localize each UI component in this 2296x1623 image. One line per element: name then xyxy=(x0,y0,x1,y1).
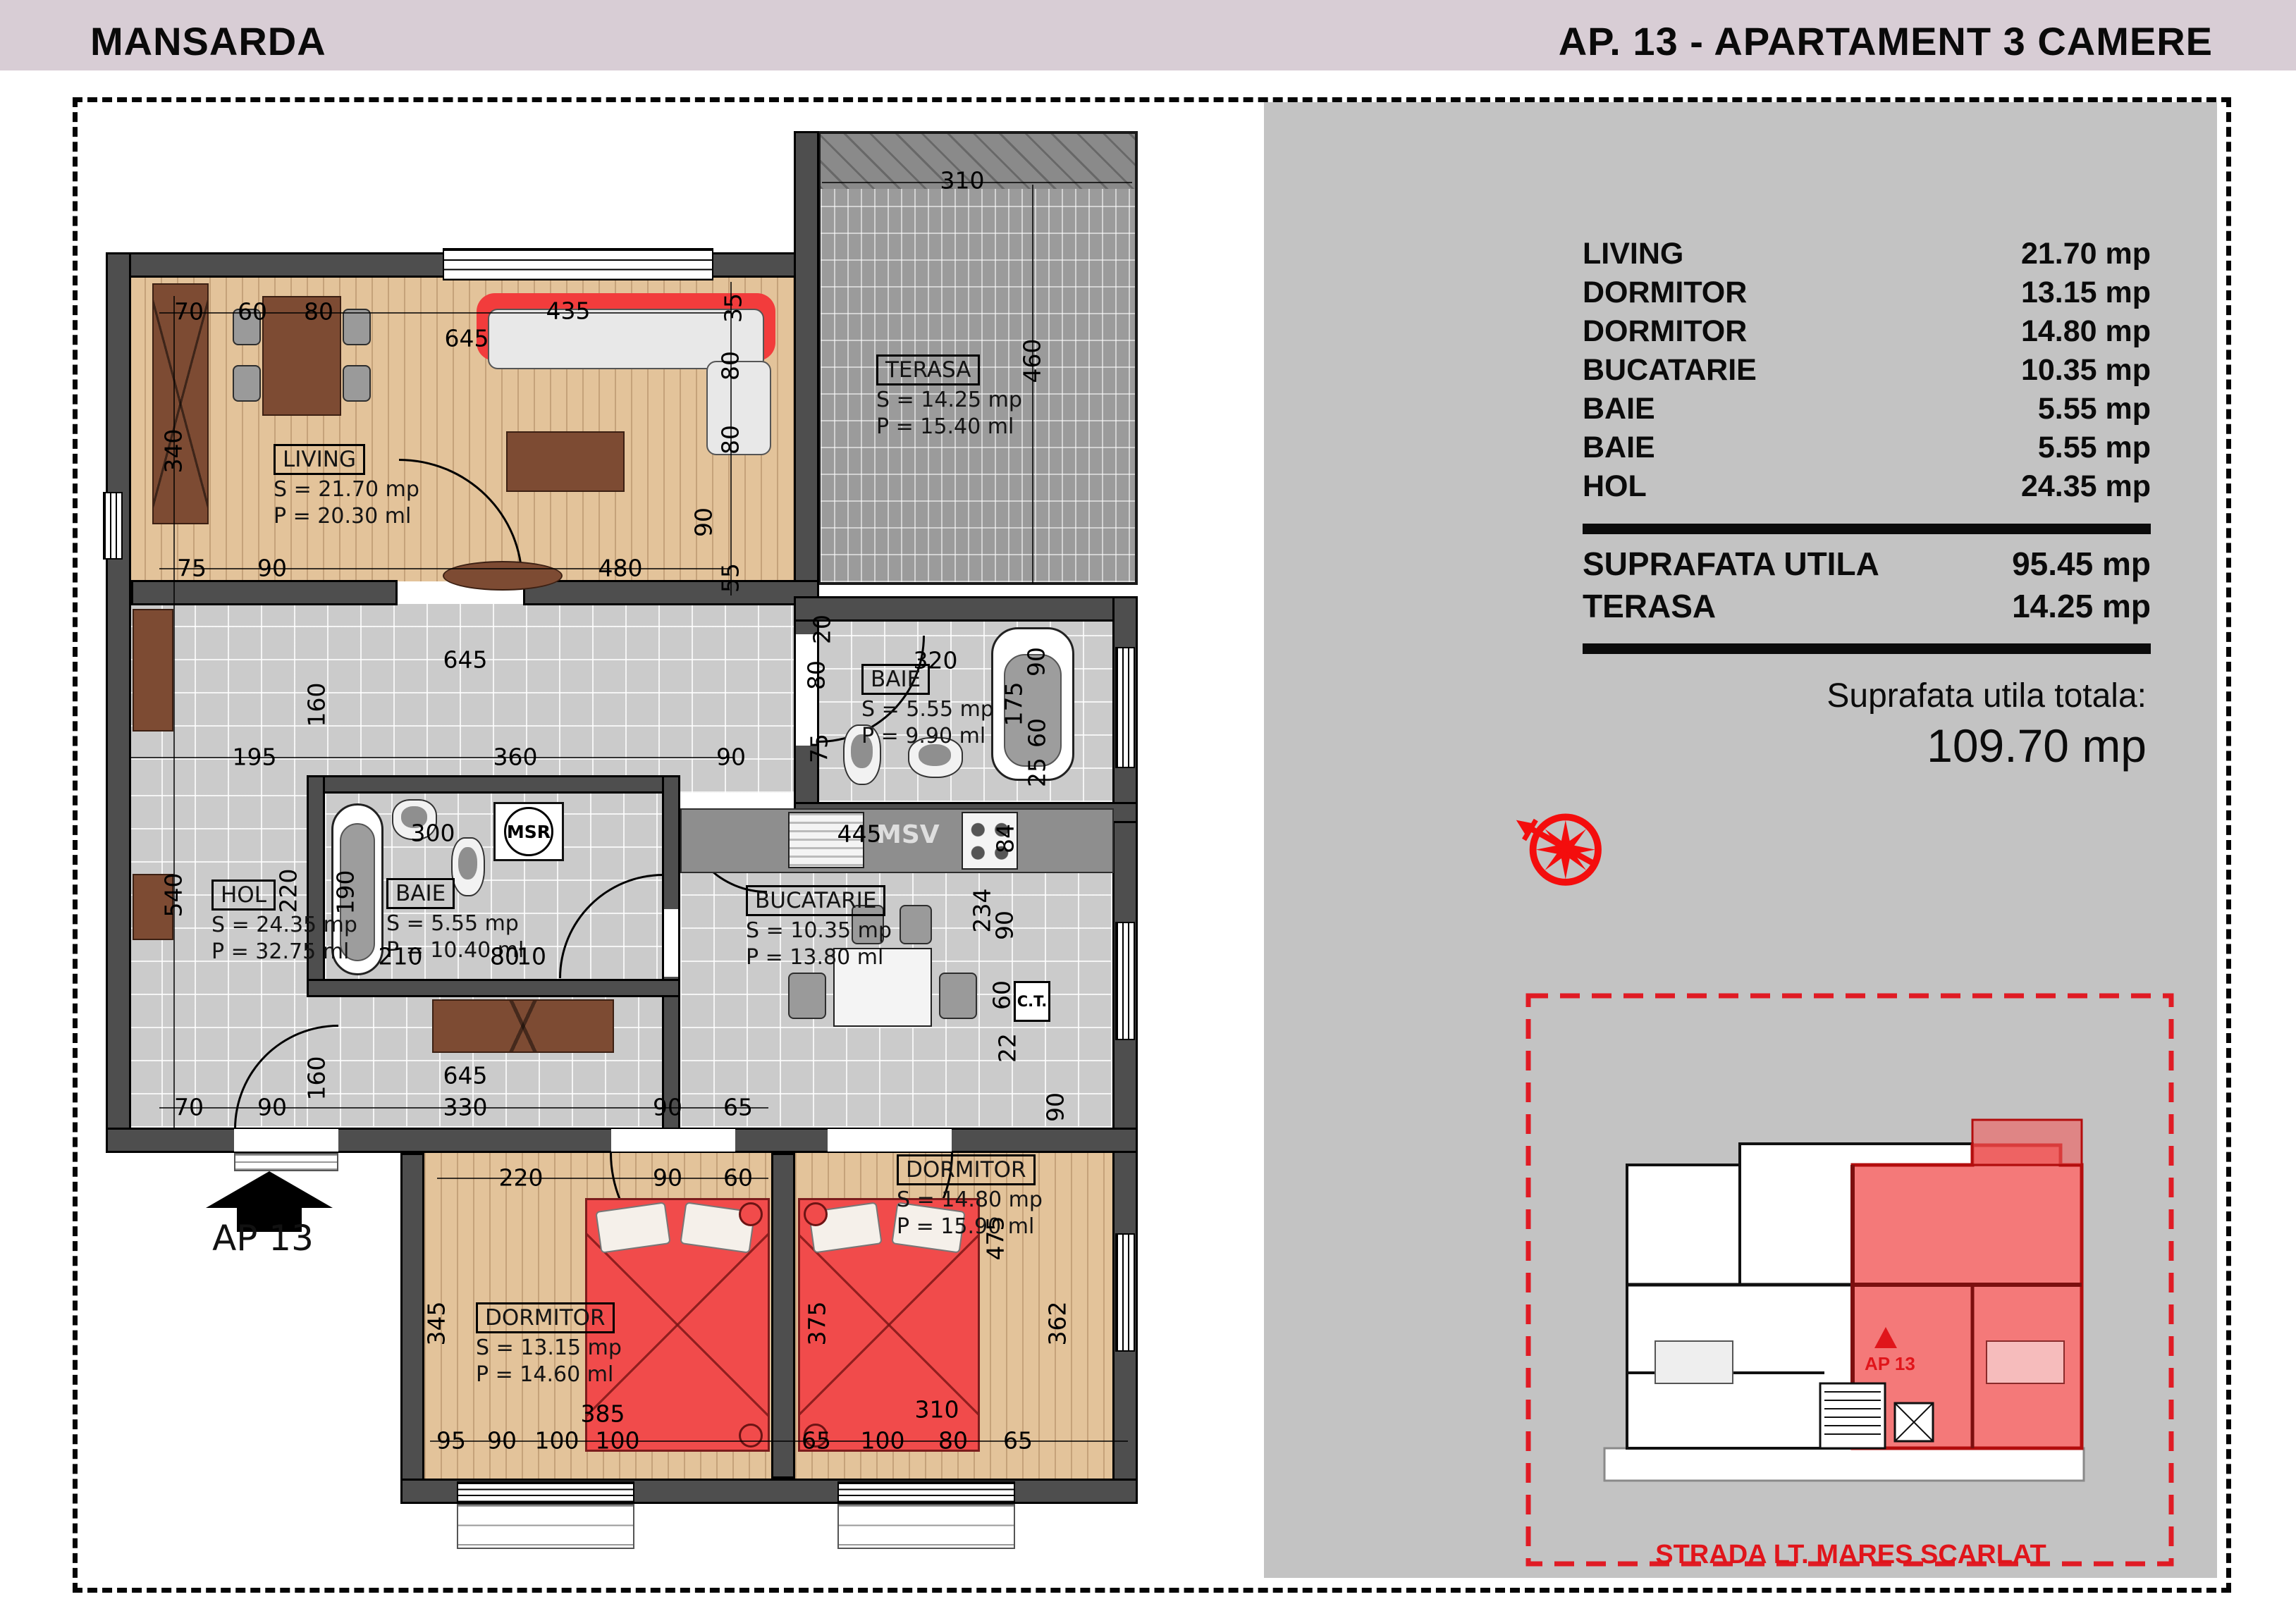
site-plan xyxy=(1521,989,2180,1586)
subtotal-name: TERASA xyxy=(1583,587,1716,625)
dimension-text: 310 xyxy=(915,1396,959,1424)
dimension-text: 310 xyxy=(940,167,985,195)
dimension-text: 90 xyxy=(1042,1092,1069,1122)
dimension-text: 90 xyxy=(991,911,1019,940)
plan-room-name: DORMITOR xyxy=(476,1302,615,1333)
plan-room-surface: S = 21.70 mp xyxy=(274,477,419,502)
plan-room-perimeter: P = 15.40 ml xyxy=(876,414,1022,439)
room-area: 24.35 mp xyxy=(2021,469,2151,504)
room-area: 14.80 mp xyxy=(2021,314,2151,349)
dimension-text: 475 xyxy=(982,1216,1009,1261)
site-unit-label: AP 13 xyxy=(1865,1353,1915,1375)
door-opening xyxy=(611,1129,735,1152)
window xyxy=(443,248,713,280)
dimension-text: 340 xyxy=(160,429,188,474)
dimension-text: 60 xyxy=(1024,718,1051,748)
divider xyxy=(1583,643,2151,654)
dimension-text: 160 xyxy=(303,683,331,727)
wall xyxy=(307,979,680,997)
dimension-text: 445 xyxy=(837,820,882,848)
plan-room-name: DORMITOR xyxy=(897,1154,1036,1185)
chair xyxy=(343,365,371,402)
floor-plan: MSR MSV C.T. AP 13 LIVINGS = 21.70 mpP =… xyxy=(0,0,1269,1623)
room-name: BAIE xyxy=(1583,392,1655,426)
plan-room-label: BAIES = 5.55 mpP = 9.90 ml xyxy=(861,664,994,749)
msr-annotation: MSR xyxy=(493,802,564,861)
dimension-text: 300 xyxy=(411,820,455,847)
plan-room-label: TERASAS = 14.25 mpP = 15.40 ml xyxy=(876,354,1022,440)
dimension-text: 90 xyxy=(690,507,718,537)
dimension-text: 60 xyxy=(988,980,1016,1010)
dimension-text: 90 xyxy=(653,1094,682,1121)
plan-room-name: BAIE xyxy=(386,878,455,909)
dimension-text: 60 xyxy=(238,298,267,326)
dimension-text: 540 xyxy=(160,873,188,918)
chair xyxy=(233,365,261,402)
room-name: LIVING xyxy=(1583,237,1683,271)
plan-room-perimeter: P = 15.90 ml xyxy=(897,1214,1043,1239)
dimension-line xyxy=(437,1178,768,1179)
plan-room-perimeter: P = 20.30 ml xyxy=(274,504,419,529)
plan-room-name: TERASA xyxy=(876,354,980,385)
room-area: 13.15 mp xyxy=(2021,276,2151,310)
plan-room-perimeter: P = 9.90 ml xyxy=(861,724,994,748)
dimension-text: 90 xyxy=(716,743,746,771)
dimension-text: 210 xyxy=(379,943,423,970)
room-area: 5.55 mp xyxy=(2038,431,2151,465)
entrance-arrow-icon xyxy=(206,1171,333,1208)
room-name: BAIE xyxy=(1583,431,1655,465)
dresser xyxy=(432,999,614,1053)
dimension-text: 55 xyxy=(717,563,744,593)
dimension-text: 375 xyxy=(804,1302,831,1346)
door-opening xyxy=(828,1129,952,1152)
wall xyxy=(771,1153,795,1479)
street-label: STRADA LT. MARES SCARLAT xyxy=(1521,1540,2180,1570)
dimension-line xyxy=(131,757,733,758)
window xyxy=(457,1481,634,1502)
dimension-text: 65 xyxy=(723,1094,753,1121)
window xyxy=(1115,647,1135,768)
dimension-text: 220 xyxy=(499,1164,544,1192)
wall xyxy=(131,580,398,605)
door-opening xyxy=(796,634,817,746)
plan-room-perimeter: P = 32.75 ml xyxy=(211,939,357,964)
closet xyxy=(133,609,173,732)
plan-room-label: LIVINGS = 21.70 mpP = 20.30 ml xyxy=(274,444,419,529)
plan-room-surface: S = 5.55 mp xyxy=(386,911,524,936)
plan-room-surface: S = 10.35 mp xyxy=(746,918,892,943)
chair xyxy=(900,905,932,944)
dimension-text: 84 xyxy=(992,824,1019,853)
room-name: DORMITOR xyxy=(1583,276,1747,310)
bed-knob xyxy=(739,1202,763,1226)
room-name: HOL xyxy=(1583,469,1647,504)
room-area: 21.70 mp xyxy=(2021,237,2151,271)
dimension-text: 25 xyxy=(1024,758,1051,787)
wall xyxy=(307,775,680,794)
plan-room-label: DORMITORS = 13.15 mpP = 14.60 ml xyxy=(476,1302,622,1388)
dimension-text: 65 xyxy=(802,1427,831,1455)
room-area-row: HOL24.35 mp xyxy=(1583,467,2151,506)
wall xyxy=(523,580,819,605)
summary-panel: LIVING21.70 mpDORMITOR13.15 mpDORMITOR14… xyxy=(1264,102,2217,1578)
plan-room-surface: S = 14.80 mp xyxy=(897,1187,1043,1212)
room-area: 10.35 mp xyxy=(2021,353,2151,388)
plan-room-name: BUCATARIE xyxy=(746,885,885,916)
entrance-threshold xyxy=(234,1153,338,1171)
dimension-text: 80 xyxy=(803,660,830,690)
dimension-line xyxy=(1032,185,1033,584)
window-sill xyxy=(457,1504,634,1549)
msr-label: MSR xyxy=(504,807,553,856)
dimension-text: 385 xyxy=(581,1400,625,1428)
dimension-text: 645 xyxy=(445,325,489,352)
dimension-text: 645 xyxy=(443,1062,488,1090)
plan-room-surface: S = 24.35 mp xyxy=(211,913,357,937)
subtotal-row: SUPRAFATA UTILA95.45 mp xyxy=(1583,543,2151,585)
room-area-row: BAIE5.55 mp xyxy=(1583,390,2151,428)
divider xyxy=(1583,524,2151,534)
dimension-text: 70 xyxy=(174,1094,204,1121)
wall xyxy=(794,596,1138,622)
subtotal-area: 95.45 mp xyxy=(2012,545,2151,583)
dimension-text: 360 xyxy=(493,743,538,771)
window xyxy=(1115,1233,1135,1352)
dimension-text: 220 xyxy=(275,869,302,913)
dimension-text: 190 xyxy=(332,870,360,915)
apartment-title: AP. 13 - APARTAMENT 3 CAMERE xyxy=(1559,18,2213,64)
plan-room-name: HOL xyxy=(211,880,276,911)
room-name: DORMITOR xyxy=(1583,314,1747,349)
plan-room-label: BUCATARIES = 10.35 mpP = 13.80 ml xyxy=(746,885,892,970)
room-area-row: LIVING21.70 mp xyxy=(1583,235,2151,273)
ct-label: C.T. xyxy=(1014,981,1050,1022)
dimension-text: 100 xyxy=(861,1427,905,1455)
chair xyxy=(939,973,977,1019)
coffee-table xyxy=(506,431,625,492)
dimension-text: 160 xyxy=(303,1056,331,1101)
dimension-text: 435 xyxy=(546,297,591,325)
dimension-text: 345 xyxy=(423,1302,450,1346)
dimension-text: 320 xyxy=(914,647,958,674)
dimension-text: 75 xyxy=(177,555,207,582)
dimension-text: 80 xyxy=(717,425,744,455)
plan-room-surface: S = 5.55 mp xyxy=(861,697,994,722)
window-sill xyxy=(837,1504,1015,1549)
plan-room-perimeter: P = 13.80 ml xyxy=(746,945,892,970)
tv-bench xyxy=(443,561,563,591)
msv-label: MSV xyxy=(876,820,940,849)
dimension-text: 100 xyxy=(535,1427,579,1455)
room-area-row: BAIE5.55 mp xyxy=(1583,428,2151,467)
site-unit-marker-icon xyxy=(1874,1327,1897,1348)
plan-room-surface: S = 13.15 mp xyxy=(476,1335,622,1360)
dimension-text: 80 xyxy=(938,1427,968,1455)
subtotal-name: SUPRAFATA UTILA xyxy=(1583,545,1879,583)
dimension-text: 90 xyxy=(487,1427,517,1455)
dimension-text: 75 xyxy=(806,734,833,763)
dimension-text: 10 xyxy=(517,943,546,970)
compass-icon xyxy=(1514,796,1613,895)
window xyxy=(1115,922,1135,1040)
plan-room-label: DORMITORS = 14.80 mpP = 15.90 ml xyxy=(897,1154,1043,1240)
dimension-line xyxy=(173,296,175,1128)
dimension-text: 195 xyxy=(233,743,277,771)
subtotal-row: TERASA14.25 mp xyxy=(1583,585,2151,627)
bed-knob xyxy=(739,1424,763,1448)
dimension-text: 90 xyxy=(257,1094,287,1121)
subtotal-table: SUPRAFATA UTILA95.45 mpTERASA14.25 mp xyxy=(1583,543,2151,627)
total-area-value: 109.70 mp xyxy=(1927,719,2147,772)
dimension-text: 80 xyxy=(304,298,333,326)
door-opening xyxy=(664,909,678,977)
dimension-text: 35 xyxy=(720,293,747,323)
dimension-text: 330 xyxy=(443,1094,488,1121)
dimension-text: 100 xyxy=(596,1427,640,1455)
chair xyxy=(788,973,826,1019)
room-name: BUCATARIE xyxy=(1583,353,1757,388)
dimension-text: 90 xyxy=(1023,647,1050,677)
dimension-text: 95 xyxy=(436,1427,466,1455)
wall xyxy=(400,1153,424,1504)
subtotal-area: 14.25 mp xyxy=(2012,587,2151,625)
door-opening xyxy=(234,1129,338,1152)
room-area: 5.55 mp xyxy=(2038,392,2151,426)
dimension-text: 70 xyxy=(174,298,204,326)
room-area-row: DORMITOR13.15 mp xyxy=(1583,273,2151,312)
chair xyxy=(343,309,371,345)
dimension-text: 460 xyxy=(1019,339,1046,383)
dimension-text: 80 xyxy=(490,943,520,970)
bed-knob xyxy=(804,1202,828,1226)
door-opening xyxy=(682,795,766,808)
dimension-text: 90 xyxy=(653,1164,682,1192)
room-area-row: DORMITOR14.80 mp xyxy=(1583,312,2151,351)
plan-room-perimeter: P = 14.60 ml xyxy=(476,1362,622,1387)
entrance-label: AP 13 xyxy=(203,1218,323,1259)
dimension-text: 90 xyxy=(257,555,287,582)
dimension-text: 22 xyxy=(994,1033,1021,1063)
total-area-label: Suprafata utila totala: xyxy=(1827,677,2147,715)
dimension-text: 362 xyxy=(1044,1302,1072,1346)
dimension-text: 645 xyxy=(443,646,488,674)
dimension-text: 80 xyxy=(717,351,744,381)
dimension-text: 20 xyxy=(809,615,836,644)
room-area-row: BUCATARIE10.35 mp xyxy=(1583,351,2151,390)
room-area-hol-corridor xyxy=(128,604,795,793)
window xyxy=(103,492,123,560)
plan-room-name: LIVING xyxy=(274,444,365,475)
wall xyxy=(106,252,131,1153)
dimension-line xyxy=(159,568,730,569)
window xyxy=(837,1481,1015,1502)
plan-room-surface: S = 14.25 mp xyxy=(876,388,1022,412)
dimension-text: 65 xyxy=(1003,1427,1033,1455)
dimension-text: 60 xyxy=(723,1164,753,1192)
dimension-text: 480 xyxy=(598,555,643,582)
room-area-table: LIVING21.70 mpDORMITOR13.15 mpDORMITOR14… xyxy=(1583,235,2151,506)
